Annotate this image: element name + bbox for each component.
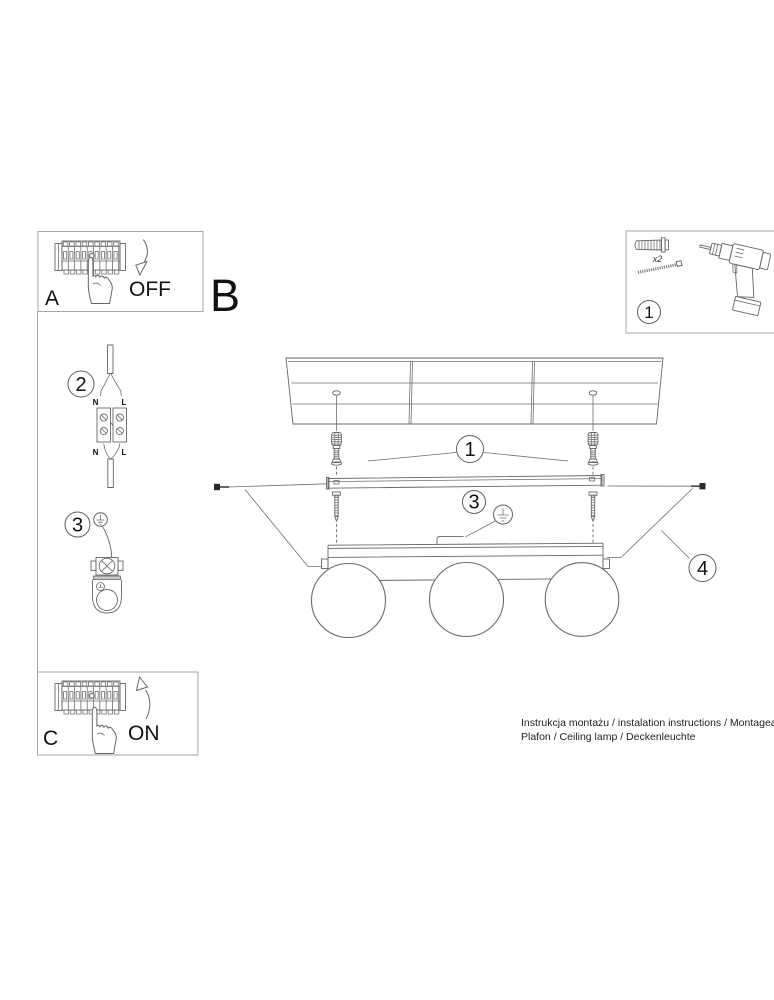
drill-hole	[333, 391, 341, 395]
kit-step-number: 1	[644, 303, 653, 322]
section-letter-b: B	[210, 270, 240, 321]
power-drill-icon	[688, 236, 773, 316]
curved-arrow-down-icon	[136, 240, 148, 276]
output-neutral-label: N	[93, 448, 99, 457]
step-letter-c: C	[43, 727, 58, 750]
footer-title-line: Instrukcja montażu / instalation instruc…	[521, 717, 774, 729]
drill-hole	[589, 391, 597, 395]
glass-globe	[430, 563, 504, 637]
ground-wire-hook	[437, 536, 464, 545]
grounding-step-number: 3	[72, 515, 83, 537]
ground-symbol-icon	[494, 505, 513, 524]
instruction-sheet: OFF A B x2 1	[0, 0, 774, 1000]
side-screw-left-icon	[214, 484, 327, 567]
circuit-breaker-icon	[55, 681, 126, 714]
glass-globe	[312, 564, 386, 638]
machine-screw-icon	[589, 492, 597, 543]
mounting-kit-panel: x2 1	[626, 231, 774, 333]
supply-cable-icon	[101, 345, 122, 396]
ground-callout: 3	[463, 491, 513, 537]
anchors-callout: 1	[368, 436, 568, 463]
ground-symbol-icon	[94, 513, 108, 527]
pressing-hand-icon	[88, 257, 112, 303]
side-screws-callout-number: 4	[697, 558, 708, 580]
ground-wire-icon	[102, 526, 111, 557]
output-live-label: L	[122, 448, 127, 457]
lamp-cable-icon	[104, 444, 120, 488]
assembly-diagram: 1 3	[214, 358, 716, 638]
wiring-step-group: 2 N L N L	[68, 345, 127, 488]
anchors-callout-number: 1	[464, 439, 475, 461]
glass-globe	[545, 563, 619, 637]
input-neutral-label: N	[93, 398, 99, 407]
wall-plug-icon	[635, 238, 669, 252]
footer-product-line: Plafon / Ceiling lamp / Deckenleuchte	[521, 731, 696, 743]
step-a-panel: OFF A	[38, 232, 203, 312]
side-screws-callout: 4	[662, 531, 717, 582]
anchor-quantity-label: x2	[652, 254, 663, 264]
side-screw-tab	[322, 559, 329, 569]
ceiling-panel-icon	[286, 358, 663, 424]
step-c-panel: ON C	[38, 672, 199, 755]
side-screw-tab	[603, 559, 610, 569]
machine-screw-icon	[333, 492, 341, 543]
ground-callout-number: 3	[468, 492, 479, 514]
step-letter-a: A	[45, 287, 59, 310]
side-screw-right-icon	[607, 483, 706, 558]
mounting-bracket-icon	[327, 475, 605, 490]
anchor-bolt-icon	[588, 396, 598, 477]
curved-arrow-up-icon	[137, 677, 150, 719]
instruction-drawing: OFF A B x2 1	[0, 0, 774, 1000]
switch-state-on-label: ON	[128, 722, 160, 745]
footer: Instrukcja montażu / instalation instruc…	[521, 717, 774, 743]
bracket-terminal-icon	[91, 558, 123, 614]
input-live-label: L	[122, 398, 127, 407]
wiring-step-number: 2	[75, 374, 86, 396]
anchor-bolt-icon	[332, 396, 342, 477]
switch-state-off-label: OFF	[129, 278, 171, 301]
terminal-block-icon	[97, 408, 127, 442]
grounding-step-group: 3	[65, 512, 123, 613]
